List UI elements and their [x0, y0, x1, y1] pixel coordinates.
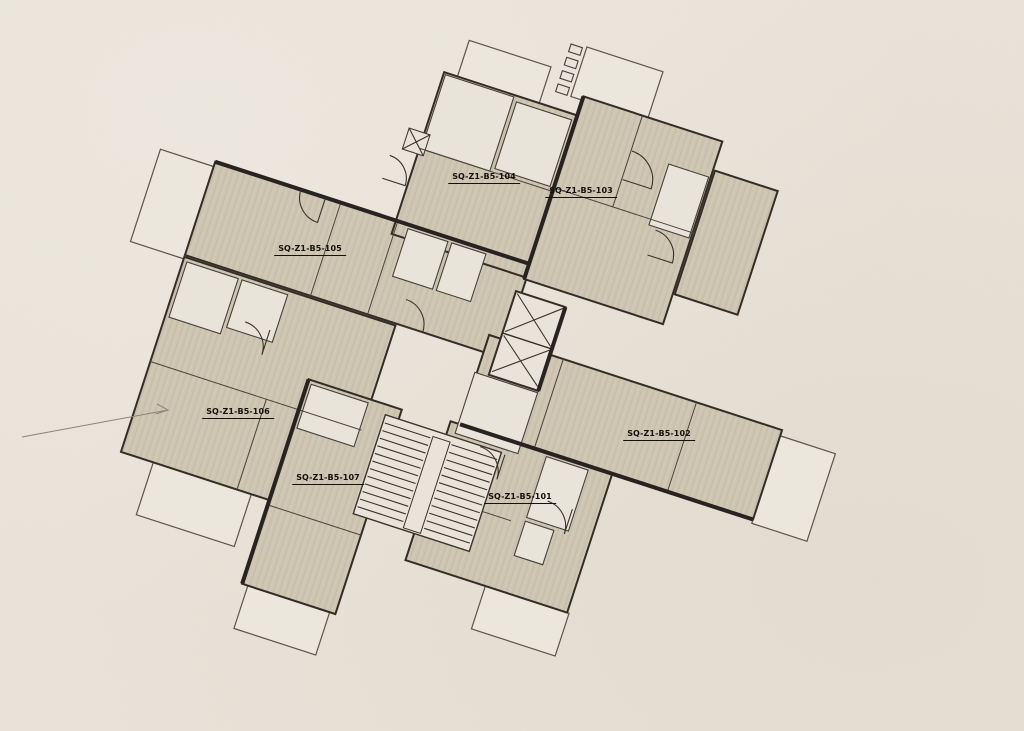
floor-plan-canvas: [0, 0, 1024, 731]
unit-label-103: SQ-Z1-B5-103: [545, 186, 617, 198]
unit-label-105: SQ-Z1-B5-105: [274, 244, 346, 256]
unit-label-102: SQ-Z1-B5-102: [623, 429, 695, 441]
unit-label-104: SQ-Z1-B5-104: [448, 172, 520, 184]
unit-label-107: SQ-Z1-B5-107: [292, 473, 364, 485]
unit-label-101: SQ-Z1-B5-101: [484, 492, 556, 504]
floor-plan-page: SQ-Z1-B5-101 SQ-Z1-B5-102 SQ-Z1-B5-103 S…: [0, 0, 1024, 731]
unit-label-106: SQ-Z1-B5-106: [202, 407, 274, 419]
